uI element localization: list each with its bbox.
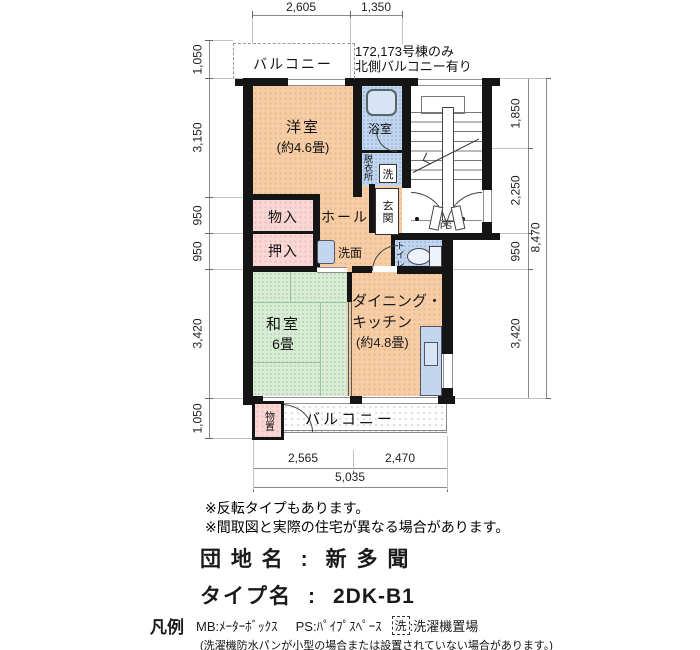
dim-right-4: 3,420 [510, 304, 523, 364]
dk-label: ダイニング・ キッチン (約4.8畳) [352, 290, 448, 351]
washitsu-label: 和室 6畳 [243, 313, 323, 354]
hall-label: ホール [318, 207, 372, 227]
dim-right-2: 2,250 [510, 161, 523, 221]
legend-heading: 凡例 [150, 613, 184, 638]
datsuiijo-label: 脱衣所 [362, 154, 375, 181]
type-name-value: 2DK-B1 [333, 585, 415, 609]
dim-extension [455, 398, 546, 399]
sliding-door-mark [317, 267, 347, 273]
dim-extension [253, 440, 254, 490]
dim-extension [500, 78, 546, 79]
stair-stringer [442, 107, 454, 222]
legend-block: 凡例 MB:ﾒｰﾀｰﾎﾞｯｸｽ PS:ﾊﾟｲﾌﾟｽﾍﾟｰｽ 洗 :洗濯機置場 [150, 613, 478, 638]
dim-extension [353, 450, 354, 471]
wall-segment [391, 233, 500, 240]
genkan-label: 玄関 [379, 200, 395, 224]
wall-segment [353, 86, 362, 197]
window-north-youshitsu [288, 79, 345, 86]
wall-segment [442, 388, 453, 404]
estate-name-label: 団 地 名 [200, 543, 285, 573]
laundry-symbol: 洗 [383, 166, 394, 182]
wall-segment [253, 231, 313, 234]
dim-extension [213, 197, 243, 198]
opening-stairwell-east [483, 190, 492, 222]
dim-bottom-2: 2,470 [370, 452, 430, 465]
dim-extension [252, 18, 253, 43]
monooki-label: 物置 [261, 411, 276, 431]
dim-extension [213, 398, 243, 399]
wall-segment [402, 78, 411, 188]
wall-segment [243, 78, 253, 405]
balcony-top-outline: バルコニー [233, 43, 355, 79]
estate-name-colon: : [301, 548, 310, 572]
dim-top-1: 2,605 [271, 1, 331, 14]
monoire-label: 物入 [253, 207, 313, 227]
annotation-text: 172,173号棟のみ 北側バルコニー有り [355, 44, 472, 74]
dim-line [546, 78, 547, 398]
estate-name-value: 新 多 聞 [326, 543, 411, 573]
dim-extension [213, 233, 243, 234]
senmen-label: 洗面 [334, 244, 366, 261]
type-name-label: タイプ名 [200, 580, 292, 610]
dim-left-1: 1,050 [192, 30, 205, 90]
fusuma-track [348, 302, 349, 396]
dim-top-2: 1,350 [346, 1, 406, 14]
window-east-dk [443, 354, 453, 388]
dim-left-2: 3,150 [192, 108, 205, 168]
dim-right-1: 1,850 [510, 84, 523, 144]
note-line-1: ※反転タイプもあります。 [205, 499, 509, 518]
legend-wash-label: :洗濯機置場 [410, 616, 479, 635]
title-block: 団 地 名 : 新 多 聞 タイプ名 : 2DK-B1 [200, 543, 415, 610]
toilet-label: トイレ [396, 241, 407, 268]
dim-extension [213, 78, 243, 79]
dim-extension [213, 269, 243, 270]
tatami-line [290, 272, 291, 302]
tatami-line [253, 362, 320, 363]
window-south-dk [362, 397, 438, 404]
dim-line [253, 487, 447, 488]
toilet-bowl-icon [407, 248, 431, 265]
dim-left-6: 1,050 [192, 389, 205, 449]
opening-stairwell-north [418, 79, 482, 86]
legend-mb: MB:ﾒｰﾀｰﾎﾞｯｸｽ [196, 616, 278, 635]
legend-note: (洗濯機防水パンが小型の場合または設置されていない場合があります。) [200, 637, 553, 650]
wall-segment [243, 194, 320, 200]
dim-extension [402, 18, 403, 44]
dim-right-total: 8,470 [530, 208, 543, 268]
dim-line [253, 468, 447, 469]
toilet-tank-icon [429, 246, 442, 267]
wall-segment [350, 396, 362, 404]
oshiire-label: 押入 [253, 241, 313, 261]
wall-segment [482, 78, 492, 190]
legend-ps: PS:ﾊﾟｲﾌﾟｽﾍﾟｰｽ [296, 616, 382, 635]
balcony-bottom-label: バルコニー [280, 408, 420, 429]
dim-extension [350, 18, 351, 78]
wall-segment [243, 266, 317, 272]
estate-name-row: 団 地 名 : 新 多 聞 [200, 543, 415, 573]
legend-wash-symbol: 洗 [392, 616, 410, 635]
laundry-symbol-box: 洗 [379, 164, 397, 183]
genkan-box: 玄関 [375, 188, 399, 235]
tatami-line [253, 302, 347, 303]
dim-line [209, 40, 210, 438]
wall-segment [352, 266, 372, 273]
dim-line [252, 15, 403, 16]
bathtub-icon [366, 89, 397, 116]
note-line-2: ※間取図と実際の住宅が異なる場合があります。 [205, 518, 509, 537]
notes-block: ※反転タイプもあります。 ※間取図と実際の住宅が異なる場合があります。 [205, 499, 509, 537]
type-name-row: タイプ名 : 2DK-B1 [200, 580, 415, 610]
dim-bottom-total: 5,035 [320, 471, 380, 484]
dim-extension [213, 40, 233, 41]
dim-bottom-1: 2,565 [273, 452, 333, 465]
dim-right-3: 950 [510, 222, 523, 282]
washbasin-icon [317, 240, 335, 264]
floorplan-page: PS 玄関 洗 物置 洋室 (約4.6畳) 浴室 脱衣所 ホール 物入 押入 洗… [0, 0, 700, 650]
yokushitsu-label: 浴室 [360, 120, 400, 137]
dim-left-4: 950 [192, 222, 205, 282]
dim-left-5: 3,420 [192, 304, 205, 364]
youshitsu-label: 洋室 (約4.6畳) [253, 116, 353, 156]
dim-extension [492, 148, 528, 149]
type-name-colon: : [308, 585, 317, 609]
dim-extension [447, 436, 448, 490]
balcony-top-label: バルコニー [234, 54, 352, 74]
dim-extension [213, 438, 252, 439]
